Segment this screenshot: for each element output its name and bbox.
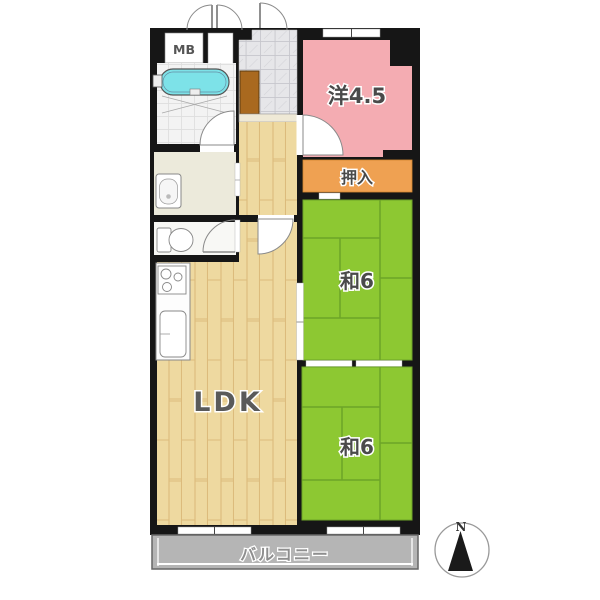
closet-doorway — [319, 193, 340, 199]
kitchen-counter — [156, 263, 190, 360]
closet-label: 押入 — [341, 168, 373, 187]
meter-box-label: MB — [173, 42, 195, 57]
ldk-label: LDK — [193, 387, 263, 418]
bath-faucet — [153, 75, 162, 87]
floor-plan-page: MB LDK — [0, 0, 600, 600]
room-tatami-2: 和6 — [302, 367, 412, 520]
window-ldk-balcony — [178, 527, 251, 534]
floor-plan: MB LDK — [0, 0, 600, 600]
ldk-tatami-sliding-door — [297, 283, 304, 360]
tatami-room-1-label: 和6 — [340, 269, 374, 293]
toilet-doorway — [235, 220, 240, 252]
stove — [158, 266, 186, 294]
room-tatami-1: 和6 — [303, 200, 412, 360]
washroom — [154, 152, 240, 215]
bathtub — [153, 69, 229, 95]
western-room-label: 洋4.5 — [328, 84, 386, 108]
washbasin — [156, 174, 181, 208]
shoe-cabinet — [240, 71, 259, 114]
tatami-room-2-label: 和6 — [340, 435, 374, 459]
balcony-label: バルコニー — [240, 545, 330, 564]
washroom-doorway — [235, 163, 240, 196]
western-doorway — [297, 115, 304, 155]
pillar-notch — [390, 40, 412, 66]
window-tatami-balcony — [327, 527, 400, 534]
bathroom — [153, 63, 236, 152]
toilet-room — [154, 220, 240, 255]
service-closet — [208, 33, 233, 66]
meter-box: MB — [165, 33, 203, 63]
closet: 押入 — [303, 160, 412, 192]
meter-box-door-arcs — [187, 5, 242, 30]
compass-north-label: N — [456, 520, 467, 534]
window-western-room — [323, 29, 380, 37]
entrance-step — [239, 114, 297, 122]
entrance-door-arc — [260, 3, 287, 30]
compass: N — [435, 520, 489, 577]
entrance-genkan — [239, 30, 297, 122]
balcony: バルコニー — [152, 535, 418, 569]
toilet — [157, 228, 193, 252]
